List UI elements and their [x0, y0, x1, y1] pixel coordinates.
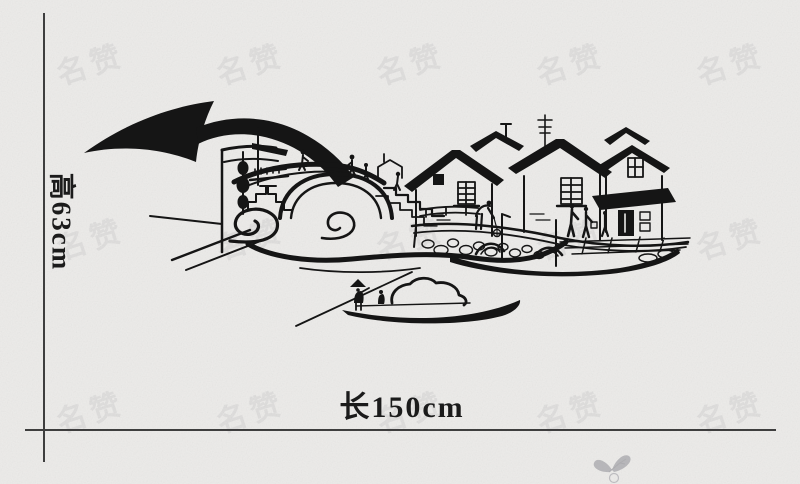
wall-decal-artwork [0, 0, 800, 484]
sampan-boat [296, 272, 520, 326]
product-image: 名赞名赞名赞名赞名赞名赞名赞名赞名赞名赞名赞名赞名赞名赞名赞 高63cm 长15… [0, 0, 800, 484]
riverside-houses [404, 115, 676, 240]
tv-antenna [538, 115, 552, 146]
boat-canopy [392, 278, 466, 305]
dock-railing [420, 207, 480, 217]
curved-eave-roofs [84, 101, 354, 187]
dock-figures [476, 201, 608, 237]
butterfly-icon [594, 455, 631, 482]
boat-passenger [378, 290, 385, 304]
